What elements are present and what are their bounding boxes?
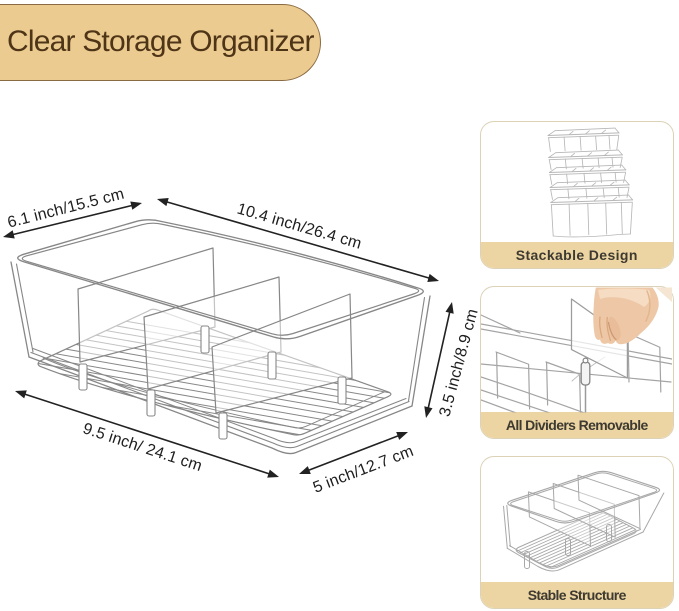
svg-text:9.5 inch/ 24.1 cm: 9.5 inch/ 24.1 cm bbox=[81, 420, 205, 475]
svg-text:3.5 inch/8.9 cm: 3.5 inch/8.9 cm bbox=[437, 307, 482, 418]
svg-text:5 inch/12.7 cm: 5 inch/12.7 cm bbox=[311, 443, 416, 497]
svg-text:6.1 inch/15.5 cm: 6.1 inch/15.5 cm bbox=[6, 186, 126, 232]
